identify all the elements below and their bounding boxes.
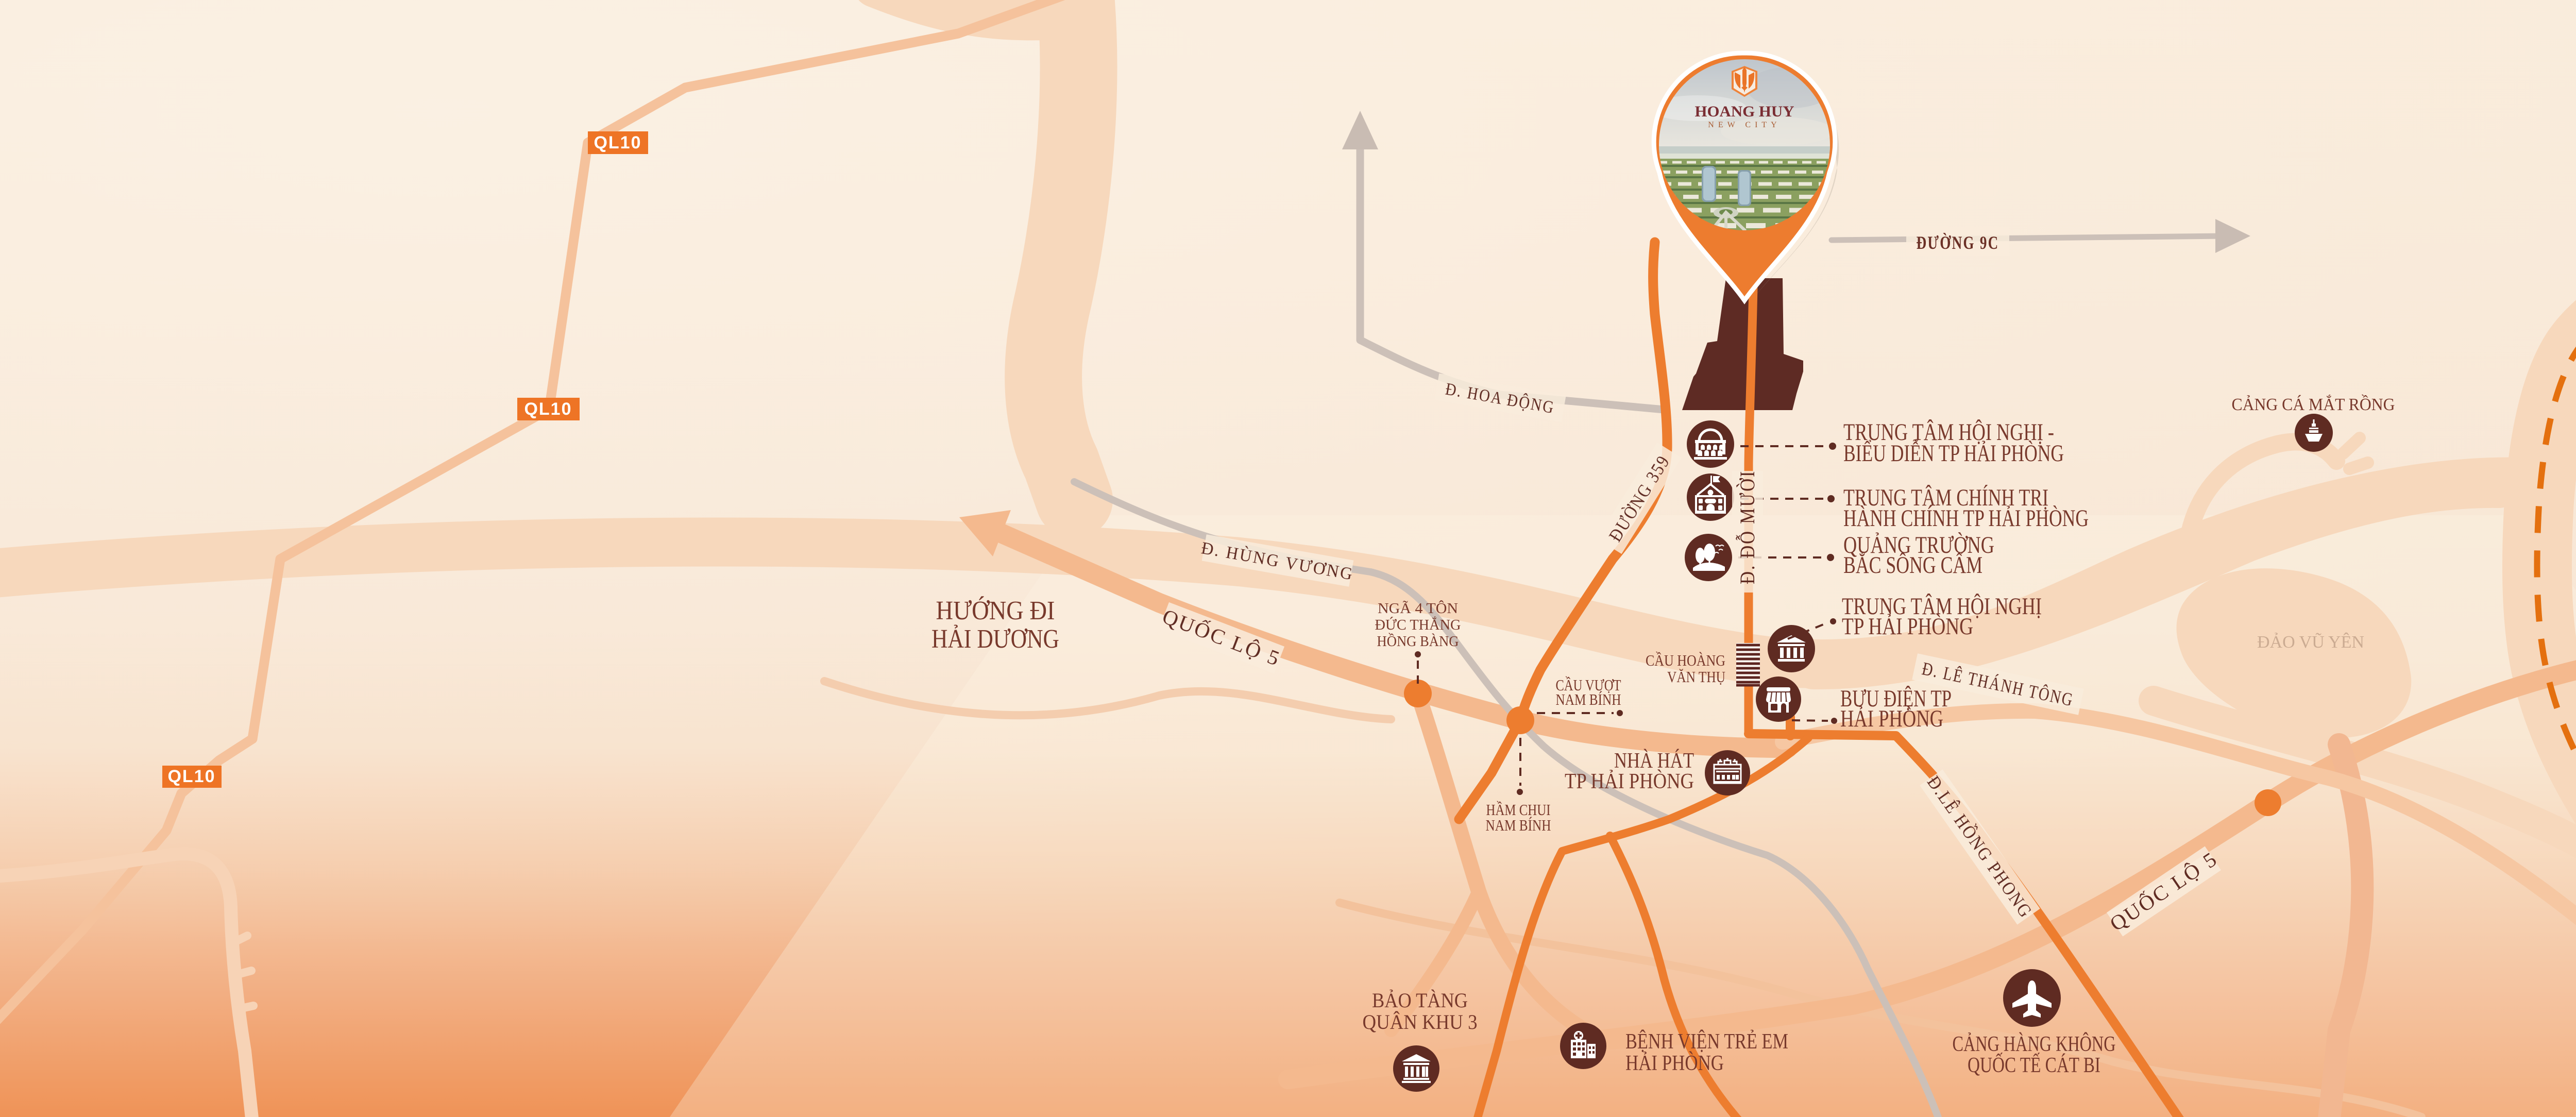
svg-text:NAM BÍNH: NAM BÍNH <box>1556 690 1621 708</box>
svg-text:CẦU HOÀNG: CẦU HOÀNG <box>1646 651 1725 669</box>
svg-text:NAM BÍNH: NAM BÍNH <box>1486 816 1551 834</box>
svg-text:CẢNG CÁ MẮT RỒNG: CẢNG CÁ MẮT RỒNG <box>2232 394 2395 414</box>
svg-text:ĐƯỜNG 9C: ĐƯỜNG 9C <box>1917 232 1999 253</box>
svg-text:HẢI PHÒNG: HẢI PHÒNG <box>1625 1051 1724 1075</box>
svg-text:NGÃ 4 TÔN: NGÃ 4 TÔN <box>1378 601 1458 617</box>
svg-text:QL10: QL10 <box>524 399 572 419</box>
svg-text:CẢNG HÀNG KHÔNG: CẢNG HÀNG KHÔNG <box>1953 1032 2116 1056</box>
svg-text:BẢO TÀNG: BẢO TÀNG <box>1372 989 1468 1012</box>
svg-text:BẮC SÔNG CẤM: BẮC SÔNG CẤM <box>1843 551 1982 579</box>
svg-text:BỆNH VIỆN TRẺ EM: BỆNH VIỆN TRẺ EM <box>1625 1029 1788 1054</box>
svg-text:Đ. ĐỖ MƯỜI: Đ. ĐỖ MƯỜI <box>1736 470 1759 584</box>
svg-text:NEW CITY: NEW CITY <box>1708 121 1781 129</box>
svg-text:HÀNH CHÍNH TP HẢI PHÒNG: HÀNH CHÍNH TP HẢI PHÒNG <box>1843 505 2089 532</box>
svg-text:VĂN THỤ: VĂN THỤ <box>1667 668 1725 686</box>
svg-text:BIỂU DIỄN TP HẢI PHÒNG: BIỂU DIỄN TP HẢI PHÒNG <box>1843 439 2064 467</box>
svg-text:QUÂN KHU 3: QUÂN KHU 3 <box>1363 1010 1478 1034</box>
svg-text:HOANG HUY: HOANG HUY <box>1695 103 1794 120</box>
svg-text:HẢI PHÒNG: HẢI PHÒNG <box>1840 705 1943 732</box>
svg-text:HỒNG BÀNG: HỒNG BÀNG <box>1377 633 1459 650</box>
svg-text:TP HẢI PHÒNG: TP HẢI PHÒNG <box>1842 613 1973 640</box>
svg-text:QUỐC TẾ CÁT BI: QUỐC TẾ CÁT BI <box>1968 1053 2100 1077</box>
svg-text:QL10: QL10 <box>167 767 215 786</box>
svg-text:QL10: QL10 <box>594 133 641 153</box>
svg-text:TP HẢI PHÒNG: TP HẢI PHÒNG <box>1565 769 1694 793</box>
svg-text:ĐỨC THẮNG: ĐỨC THẮNG <box>1375 617 1461 633</box>
svg-text:ĐẢO VŨ YÊN: ĐẢO VŨ YÊN <box>2257 633 2364 652</box>
svg-text:NHÀ HÁT: NHÀ HÁT <box>1614 749 1694 773</box>
svg-text:HẢI DƯƠNG: HẢI DƯƠNG <box>931 624 1059 654</box>
svg-text:HƯỚNG ĐI: HƯỚNG ĐI <box>936 596 1055 625</box>
